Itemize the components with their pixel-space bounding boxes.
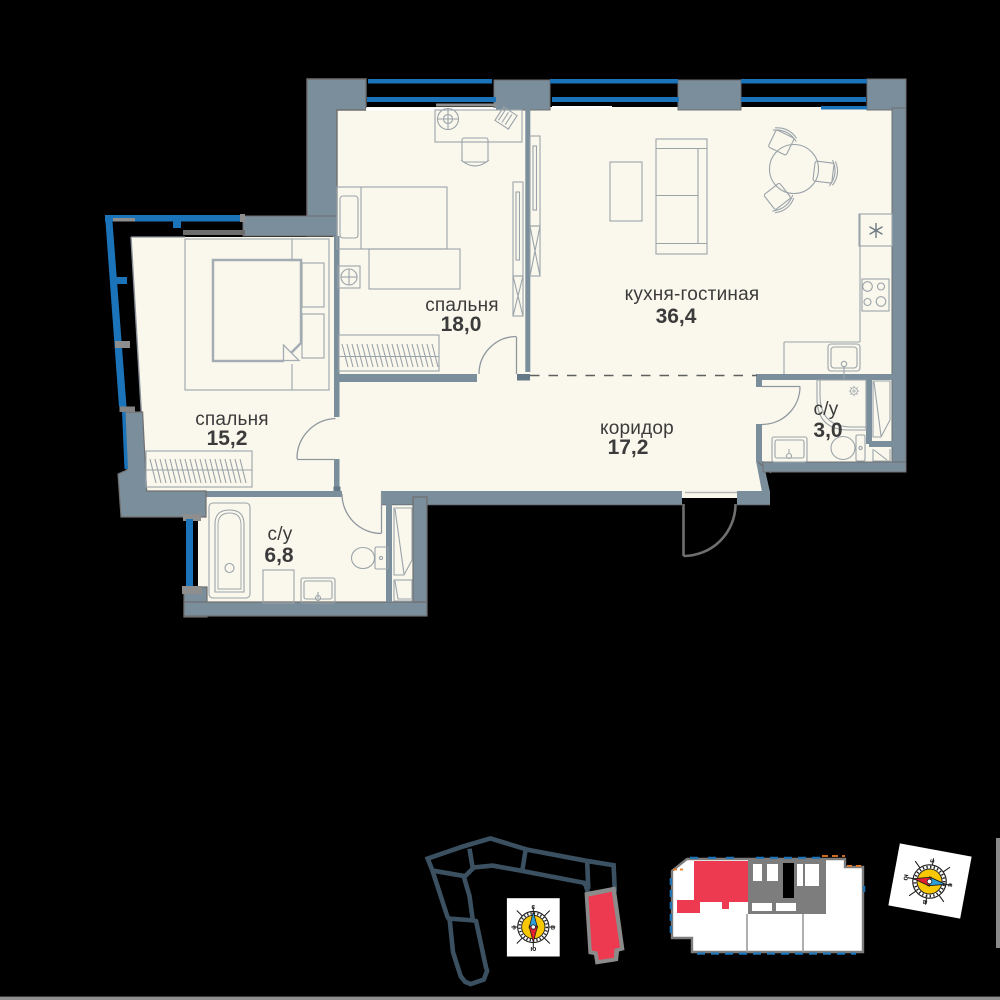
svg-text:3,0: 3,0 — [813, 419, 842, 442]
svg-text:17,2: 17,2 — [608, 436, 649, 459]
svg-text:с/у: с/у — [268, 524, 293, 545]
svg-text:18,0: 18,0 — [441, 313, 482, 336]
svg-text:36,4: 36,4 — [656, 305, 697, 328]
svg-text:с/у: с/у — [814, 399, 839, 420]
svg-text:кухня-гостиная: кухня-гостиная — [625, 284, 760, 305]
svg-text:6,8: 6,8 — [264, 544, 294, 567]
svg-text:15,2: 15,2 — [207, 427, 248, 450]
